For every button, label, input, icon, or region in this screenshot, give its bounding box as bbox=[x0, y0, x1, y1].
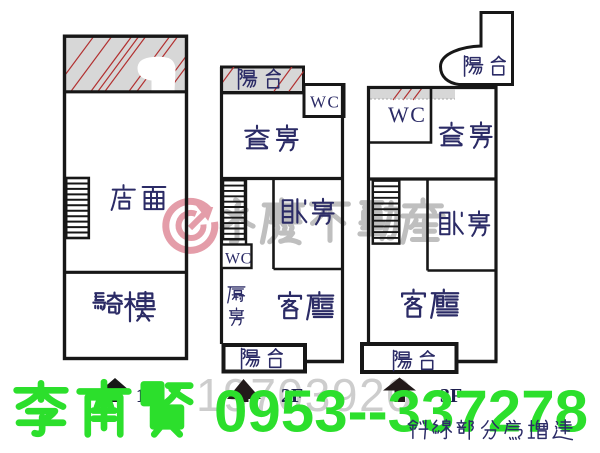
svg-text:WC: WC bbox=[388, 102, 426, 127]
svg-text:WC: WC bbox=[310, 93, 340, 112]
svg-text:WC: WC bbox=[225, 251, 252, 268]
